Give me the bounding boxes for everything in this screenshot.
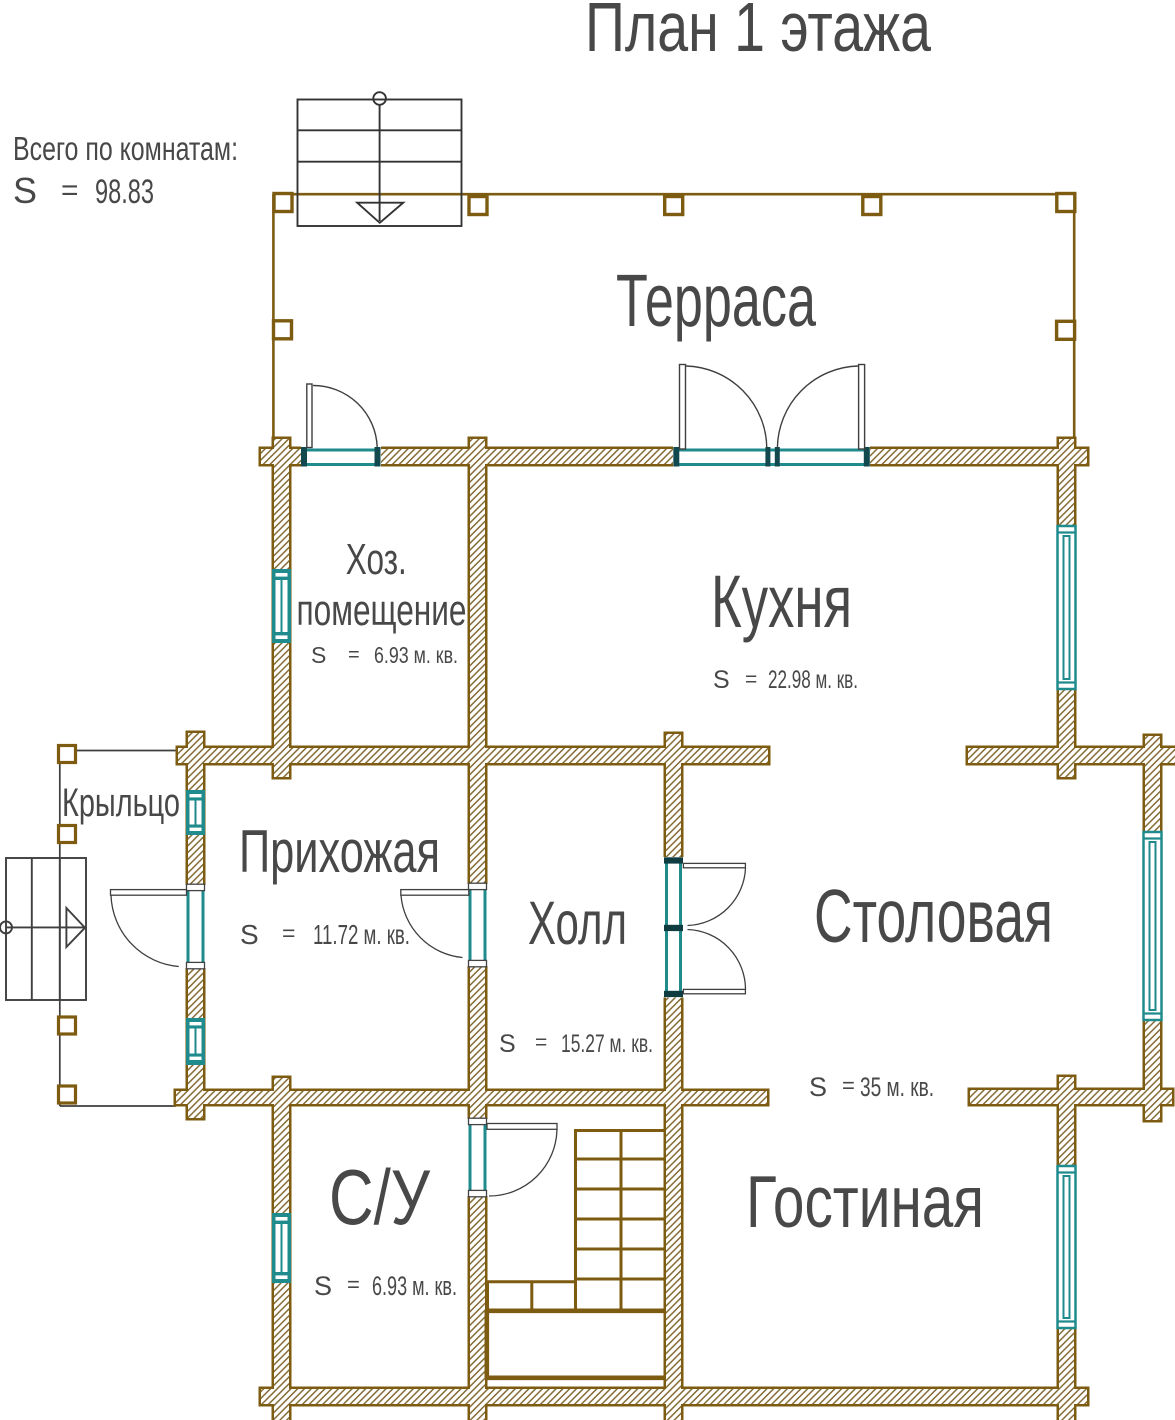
svg-text:Гостиная: Гостиная [746, 1162, 984, 1243]
svg-text:6.93 м. кв.: 6.93 м. кв. [372, 1271, 457, 1301]
svg-text:План 1 этажа: План 1 этажа [585, 0, 931, 66]
svg-text:Холл: Холл [528, 889, 627, 957]
svg-text:Кухня: Кухня [711, 560, 852, 643]
svg-text:=: = [745, 668, 757, 691]
svg-text:Терраса: Терраса [616, 259, 817, 342]
svg-text:S: S [240, 919, 259, 950]
svg-text:15.27 м. кв.: 15.27 м. кв. [561, 1030, 653, 1058]
svg-text:=: = [61, 174, 79, 207]
svg-text:Столовая: Столовая [814, 874, 1053, 958]
svg-text:С/У: С/У [329, 1153, 430, 1241]
svg-text:=: = [842, 1073, 855, 1098]
svg-text:S: S [311, 642, 326, 668]
svg-text:S: S [499, 1030, 516, 1058]
svg-text:=: = [348, 644, 360, 666]
svg-text:S: S [809, 1072, 827, 1102]
svg-text:S: S [13, 170, 37, 211]
svg-text:помещение: помещение [297, 586, 467, 635]
svg-text:35 м. кв.: 35 м. кв. [860, 1072, 934, 1102]
svg-text:11.72 м. кв.: 11.72 м. кв. [313, 919, 410, 950]
svg-text:Хоз.: Хоз. [346, 535, 407, 584]
svg-text:=: = [347, 1272, 360, 1297]
svg-text:Прихожая: Прихожая [239, 818, 440, 885]
svg-text:98.83: 98.83 [95, 173, 154, 211]
svg-text:22.98 м. кв.: 22.98 м. кв. [768, 666, 858, 694]
svg-text:S: S [314, 1271, 332, 1301]
svg-text:=: = [535, 1031, 547, 1054]
svg-text:6.93 м. кв.: 6.93 м. кв. [374, 642, 458, 668]
svg-text:=: = [282, 920, 295, 946]
svg-text:Крыльцо: Крыльцо [62, 781, 180, 825]
svg-text:S: S [713, 666, 730, 694]
svg-text:Всего по комнатам:: Всего по комнатам: [13, 130, 238, 167]
